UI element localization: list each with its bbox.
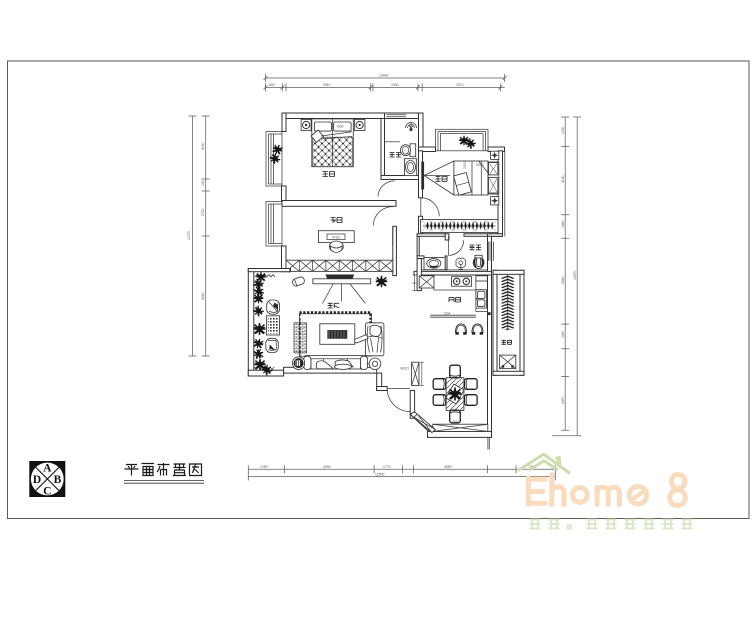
svg-text:1130: 1130 (561, 127, 565, 134)
svg-text:13400: 13400 (379, 74, 389, 78)
svg-text:11270: 11270 (187, 231, 191, 240)
svg-text:600: 600 (269, 83, 275, 87)
svg-text:3140: 3140 (561, 175, 565, 183)
svg-text:C04: C04 (444, 312, 450, 316)
svg-text:1500: 1500 (463, 161, 467, 169)
svg-text:M021: M021 (401, 367, 410, 371)
svg-text:Q06: Q06 (337, 125, 344, 129)
svg-text:1140: 1140 (561, 331, 565, 338)
svg-text:13470: 13470 (573, 270, 577, 280)
svg-text:12500: 12500 (375, 473, 385, 477)
svg-text:D: D (33, 474, 41, 486)
svg-text:1930: 1930 (391, 83, 399, 87)
svg-text:3370: 3370 (456, 83, 464, 87)
svg-text:A: A (43, 463, 52, 475)
svg-text:2730: 2730 (201, 208, 205, 216)
svg-text:6240: 6240 (201, 292, 205, 300)
svg-text:2470: 2470 (561, 396, 565, 404)
svg-text:2000: 2000 (476, 163, 484, 167)
svg-text:1770: 1770 (383, 465, 391, 469)
svg-text:E04: E04 (453, 420, 459, 424)
svg-text:4040: 4040 (201, 142, 205, 150)
svg-text:B: B (54, 474, 62, 486)
svg-text:3090: 3090 (323, 465, 331, 469)
svg-text:4718: 4718 (332, 236, 340, 240)
svg-text:1440: 1440 (561, 220, 565, 228)
svg-text:C: C (43, 486, 51, 498)
svg-text:140: 140 (201, 180, 205, 186)
svg-text:1290: 1290 (260, 465, 268, 469)
svg-text:3910: 3910 (323, 83, 331, 87)
svg-text:3690: 3690 (444, 465, 452, 469)
svg-text:3940: 3940 (561, 276, 565, 284)
